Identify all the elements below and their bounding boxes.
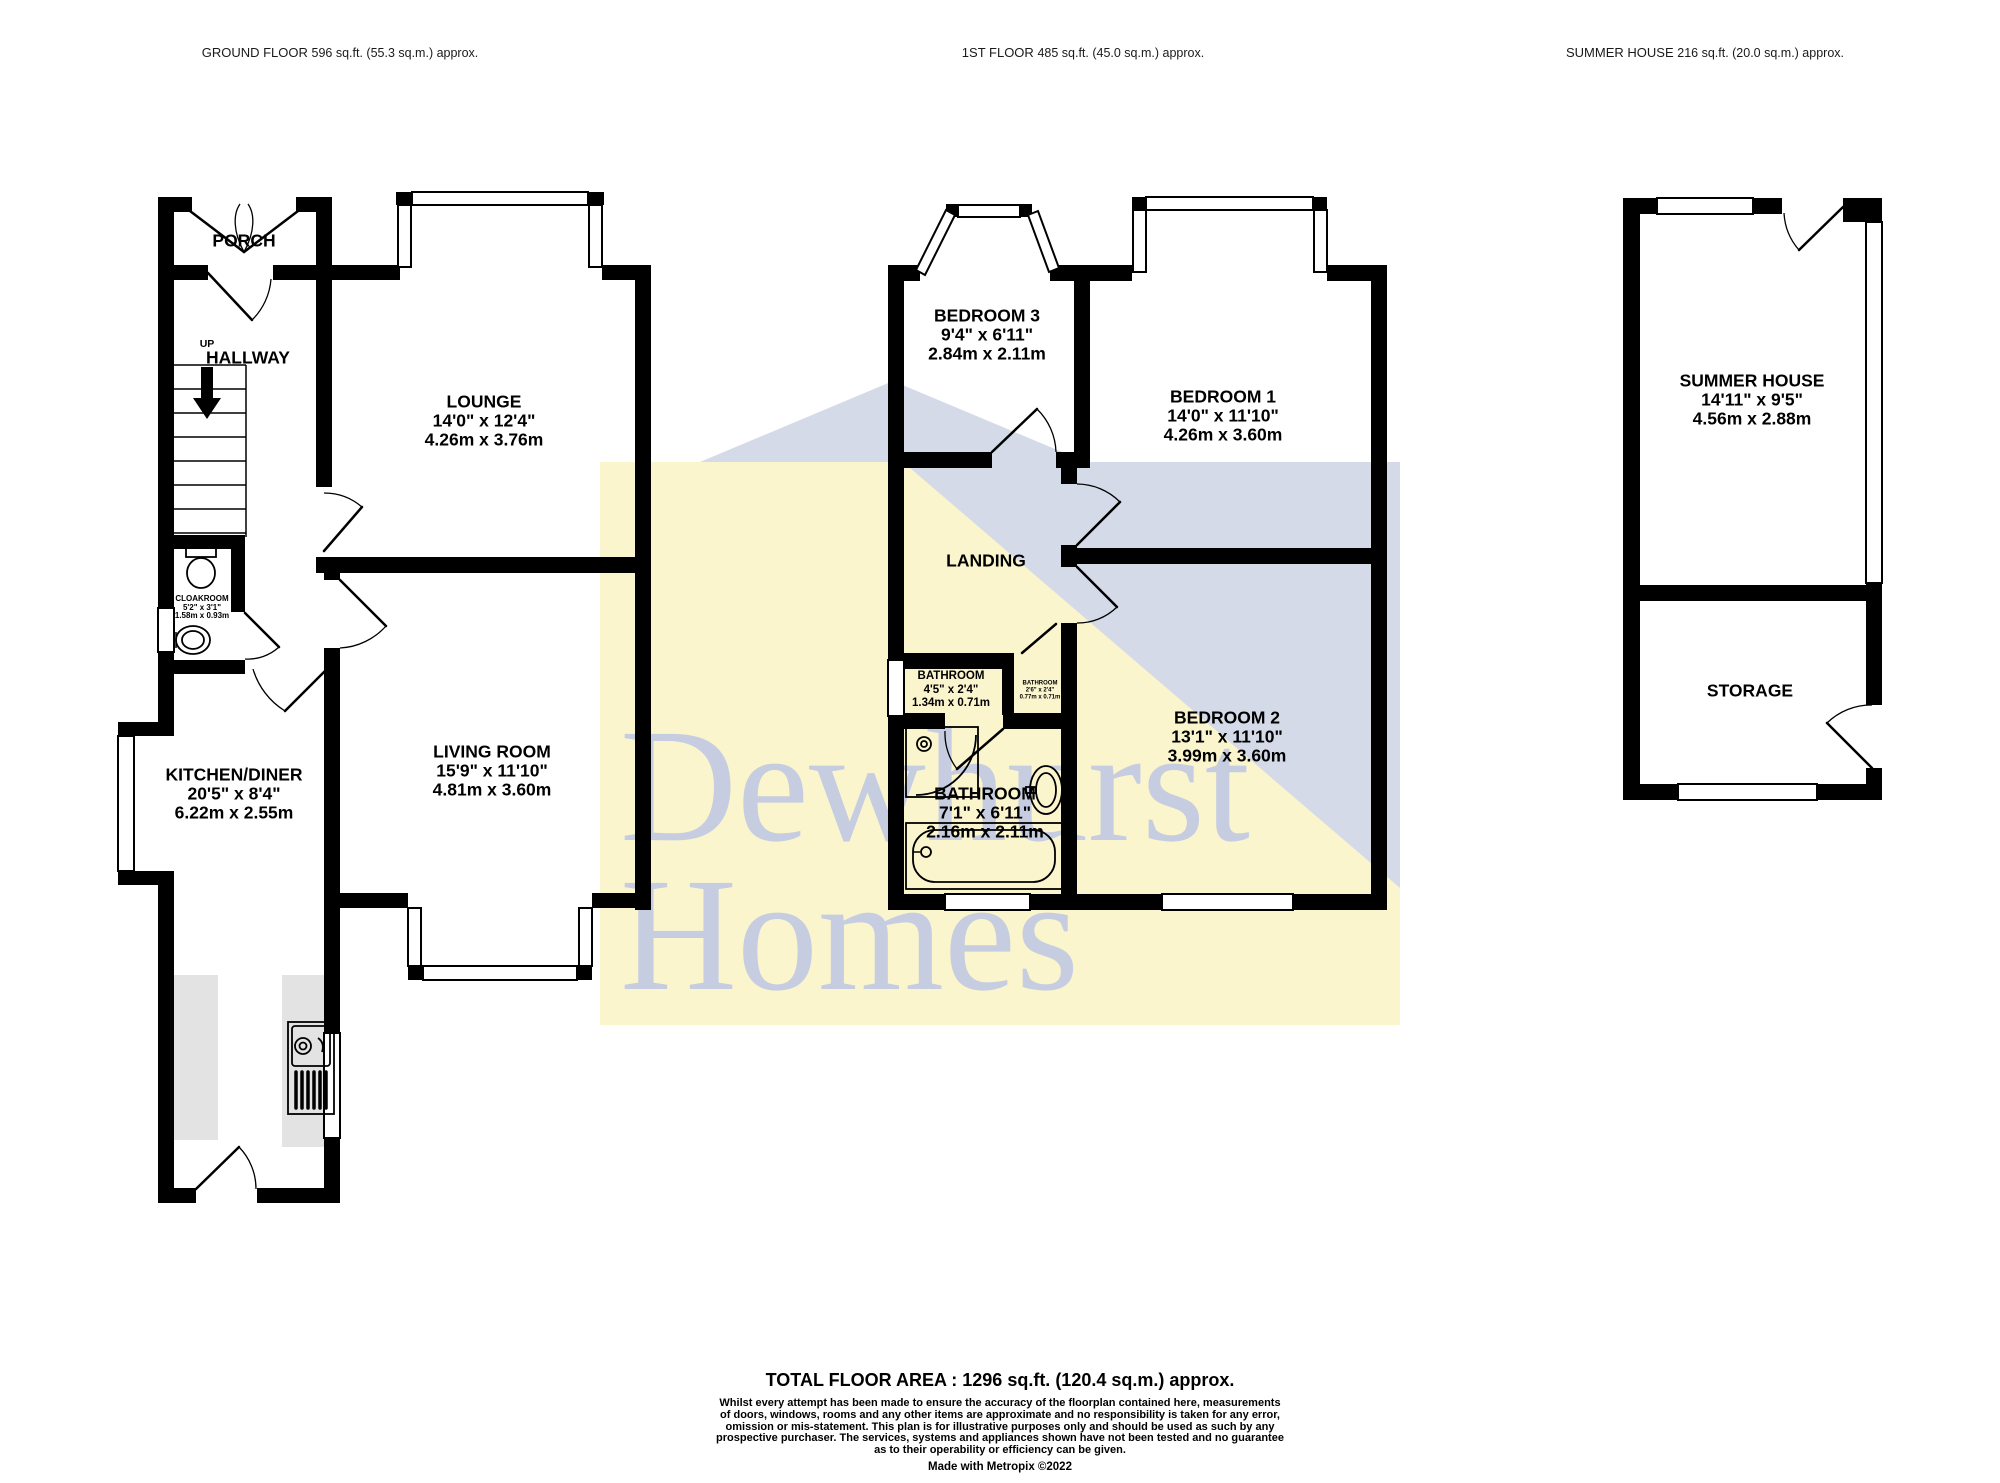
bedroom3-bay-window-right bbox=[1028, 211, 1059, 272]
storage-window bbox=[1678, 784, 1817, 800]
summer-house-window-top bbox=[1657, 198, 1753, 214]
bedroom1-bay-window-right bbox=[1314, 210, 1327, 272]
bath-tap bbox=[921, 847, 931, 857]
room-size-metric: 4.81m x 3.60m bbox=[433, 781, 552, 800]
room-size-metric: 4.56m x 2.88m bbox=[1680, 410, 1825, 429]
kitchen-counters bbox=[174, 975, 332, 1147]
room-size-metric: 1.34m x 0.71m bbox=[912, 697, 990, 711]
room-name: PORCH bbox=[212, 232, 275, 251]
room-name: STORAGE bbox=[1707, 682, 1793, 701]
living-room-bay-window-bottom bbox=[423, 966, 577, 980]
bedroom1-bay-window-left bbox=[1133, 210, 1146, 272]
room-size-metric: 4.26m x 3.60m bbox=[1164, 426, 1283, 445]
summer-house-title: SUMMER HOUSE bbox=[1566, 45, 1674, 60]
toilet-bowl bbox=[187, 558, 215, 588]
room-size-metric: 2.16m x 2.11m bbox=[926, 823, 1044, 842]
room-size-metric: 0.77m x 0.71m bbox=[1020, 695, 1061, 702]
room-name: BEDROOM 3 bbox=[928, 307, 1046, 326]
landing-label: LANDING bbox=[946, 552, 1026, 571]
kitchen-bay-window bbox=[118, 736, 134, 871]
shower-head bbox=[917, 737, 931, 751]
room-size-imperial: 20'5" x 8'4" bbox=[165, 785, 302, 804]
bedroom2-label: BEDROOM 2 13'1" x 11'10" 3.99m x 3.60m bbox=[1168, 709, 1287, 766]
room-name: BATHROOM bbox=[1020, 681, 1061, 688]
summer-house-area: 216 sq.ft. (20.0 sq.m.) approx. bbox=[1677, 46, 1844, 60]
room-name: HALLWAY bbox=[206, 349, 290, 368]
lounge-bay-window-left bbox=[398, 205, 411, 267]
lounge-bay-window-right bbox=[589, 205, 602, 267]
bathroom-small-window bbox=[888, 660, 904, 716]
bathroom-main-window bbox=[945, 894, 1030, 910]
room-name: LANDING bbox=[946, 552, 1026, 571]
living-room-label: LIVING ROOM 15'9" x 11'10" 4.81m x 3.60m bbox=[433, 743, 552, 800]
bedroom3-bay-window-left bbox=[916, 210, 955, 275]
room-name: BATHROOM bbox=[912, 670, 990, 684]
room-size-metric: 1.58m x 0.93m bbox=[175, 612, 229, 621]
room-size-metric: 3.99m x 3.60m bbox=[1168, 747, 1287, 766]
hallway-label: HALLWAY bbox=[206, 349, 290, 368]
summer-house-doors bbox=[1784, 207, 1872, 768]
room-size-imperial: 4'5" x 2'4" bbox=[912, 683, 990, 697]
room-name: BEDROOM 2 bbox=[1168, 709, 1287, 728]
room-size-imperial: 14'0" x 12'4" bbox=[425, 412, 544, 431]
bathroom-main-label: BATHROOM 7'1" x 6'11" 2.16m x 2.11m bbox=[926, 785, 1044, 842]
room-name: BATHROOM bbox=[926, 785, 1044, 804]
living-room-bay-window-right bbox=[579, 908, 592, 966]
first-floor-header: 1ST FLOOR 485 sq.ft. (45.0 sq.m.) approx… bbox=[962, 45, 1204, 61]
cloakroom-label: CLOAKROOM 5'2" x 3'1" 1.58m x 0.93m bbox=[175, 595, 229, 621]
total-floor-area: TOTAL FLOOR AREA : 1296 sq.ft. (120.4 sq… bbox=[766, 1370, 1235, 1391]
bedroom1-label: BEDROOM 1 14'0" x 11'10" 4.26m x 3.60m bbox=[1164, 388, 1283, 445]
room-size-metric: 2.84m x 2.11m bbox=[928, 345, 1046, 364]
kitchen-diner-label: KITCHEN/DINER 20'5" x 8'4" 6.22m x 2.55m bbox=[165, 766, 302, 823]
ground-floor-plan bbox=[118, 192, 651, 1203]
ground-floor-area: 596 sq.ft. (55.3 sq.m.) approx. bbox=[312, 46, 479, 60]
disclaimer-text: Whilst every attempt has been made to en… bbox=[716, 1398, 1284, 1457]
bedroom3-label: BEDROOM 3 9'4" x 6'11" 2.84m x 2.11m bbox=[928, 307, 1046, 364]
room-name: LIVING ROOM bbox=[433, 743, 552, 762]
porch-label: PORCH bbox=[212, 232, 275, 251]
room-size-imperial: 2'6" x 2'4" bbox=[1020, 688, 1061, 695]
summer-house-label: SUMMER HOUSE 14'11" x 9'5" 4.56m x 2.88m bbox=[1680, 372, 1825, 429]
room-size-imperial: 13'1" x 11'10" bbox=[1168, 728, 1287, 747]
room-name: LOUNGE bbox=[425, 393, 544, 412]
floorplan-page: Dewhurst Homes bbox=[0, 0, 2000, 1483]
metropix-credit: Made with Metropix ©2022 bbox=[928, 1461, 1072, 1473]
summer-house-window-right bbox=[1866, 222, 1882, 583]
room-size-imperial: 9'4" x 6'11" bbox=[928, 326, 1046, 345]
bedroom3-bay-window-top bbox=[958, 205, 1020, 217]
living-room-bay-window-left bbox=[408, 908, 421, 966]
summer-house-header: SUMMER HOUSE 216 sq.ft. (20.0 sq.m.) app… bbox=[1566, 45, 1844, 61]
room-size-imperial: 15'9" x 11'10" bbox=[433, 762, 552, 781]
bathroom-tiny-label: BATHROOM 2'6" x 2'4" 0.77m x 0.71m bbox=[1020, 681, 1061, 702]
room-size-metric: 6.22m x 2.55m bbox=[165, 804, 302, 823]
first-floor-title: 1ST FLOOR bbox=[962, 45, 1034, 60]
first-floor-area: 485 sq.ft. (45.0 sq.m.) approx. bbox=[1037, 46, 1204, 60]
ground-floor-title: GROUND FLOOR bbox=[202, 45, 308, 60]
lounge-bay-window-top bbox=[412, 192, 588, 205]
room-name: KITCHEN/DINER bbox=[165, 766, 302, 785]
lounge-label: LOUNGE 14'0" x 12'4" 4.26m x 3.76m bbox=[425, 393, 544, 450]
room-name: BEDROOM 1 bbox=[1164, 388, 1283, 407]
room-size-imperial: 7'1" x 6'11" bbox=[926, 804, 1044, 823]
room-size-metric: 4.26m x 3.76m bbox=[425, 431, 544, 450]
cloakroom-window bbox=[158, 608, 174, 652]
bedroom1-bay-window-top bbox=[1146, 197, 1313, 210]
summer-house-walls bbox=[1623, 198, 1882, 800]
bathroom-small-label: BATHROOM 4'5" x 2'4" 1.34m x 0.71m bbox=[912, 670, 990, 711]
room-size-imperial: 14'0" x 11'10" bbox=[1164, 407, 1283, 426]
floorplan-drawing bbox=[0, 0, 2000, 1483]
storage-label: STORAGE bbox=[1707, 682, 1793, 701]
room-size-imperial: 14'11" x 9'5" bbox=[1680, 391, 1825, 410]
summer-house-plan bbox=[1623, 198, 1882, 800]
bedroom2-window bbox=[1162, 894, 1293, 910]
staircase bbox=[174, 365, 246, 537]
stairs-direction-arrow bbox=[193, 367, 221, 419]
ground-floor-header: GROUND FLOOR 596 sq.ft. (55.3 sq.m.) app… bbox=[202, 45, 479, 61]
room-name: SUMMER HOUSE bbox=[1680, 372, 1825, 391]
